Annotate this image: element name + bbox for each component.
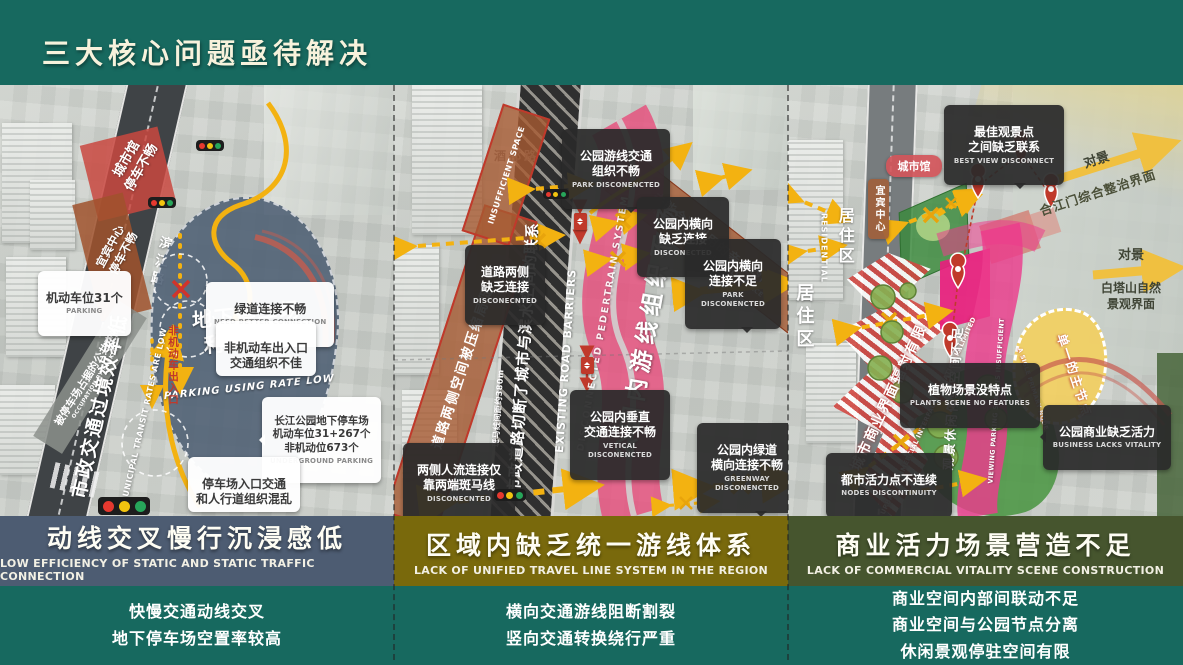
callout-en: DISCONECNTED: [473, 297, 537, 306]
parking-entrance-text: 停车场入口交通 和人行道组织混乱: [196, 477, 292, 507]
callout-en: VETICAL DISCONENCTED: [578, 442, 662, 460]
callout-zh: 植物场景没特点: [928, 383, 1012, 397]
view2-target: 白塔山自然 景观界面: [1083, 281, 1179, 312]
callout-zh: 都市活力点不连续: [841, 473, 937, 487]
greenway-link-callout: 公园内绿道 横向连接不畅 GREENWAY DISCONENCTED: [697, 423, 788, 513]
traffic-light-icon: [196, 140, 224, 151]
callout-en: BUSINESS LACKS VITALITY: [1051, 441, 1163, 450]
issue-bar-subtitle: LOW EFFICIENCY OF STATIC AND STATIC TRAF…: [0, 557, 394, 583]
issue-bar-title: 动线交叉慢行沉浸感低: [47, 519, 347, 555]
panel-commercial-map: 城市商业界面辐射有限 URBAN COMMERCIAL INTERFACE RA…: [788, 85, 1183, 516]
issue-bars: 动线交叉慢行沉浸感低 LOW EFFICIENCY OF STATIC AND …: [0, 516, 1183, 586]
lateral-weak-callout: 公园内横向 连接不足 PARK DISCONENCTED: [685, 239, 781, 329]
callout-zh: 两侧人流连接仅 靠两端斑马线: [417, 463, 501, 493]
parking-count-en: PARKING: [46, 307, 123, 316]
residential-label-2: 居住区: [792, 283, 815, 352]
nonmotor-entrance-vertical-label: 非机动车出入口: [166, 325, 181, 406]
view2-label: 对景: [1118, 248, 1144, 265]
elevator-icon: [574, 213, 587, 230]
nonmotor-entrance-text: 非机动车出入口 交通组织不佳: [224, 341, 308, 371]
issue-bar-subtitle: LACK OF UNIFIED TRAVEL LINE SYSTEM IN TH…: [414, 564, 768, 577]
issue-bar-commercial: 商业活力场景营造不足 LACK OF COMMERCIAL VITALITY S…: [788, 516, 1183, 586]
callout-zh: 公园游线交通 组织不畅: [580, 149, 652, 179]
issue-bar-traffic: 动线交叉慢行沉浸感低 LOW EFFICIENCY OF STATIC AND …: [0, 516, 394, 586]
vertical-link-callout: 公园内垂直 交通连接不畅 VETICAL DISCONENCTED: [570, 390, 670, 480]
business-callout: 公园商业缺乏活力 BUSINESS LACKS VITALITY: [1043, 405, 1171, 470]
callout-zh: 公园商业缺乏活力: [1059, 425, 1155, 439]
callout-en: GREENWAY DISCONENCTED: [705, 475, 788, 493]
callout-en: DISCONECNTED: [411, 495, 507, 504]
summary-travel-line: 横向交通游线阻断割裂 竖向交通转换绕行严重: [394, 586, 788, 665]
dashed-link-arrow: [792, 197, 840, 217]
elevator-icon: [581, 357, 594, 374]
panel-travel-line-map: 酒都路 道路两侧空间被压缩局促 INSUFFICIENT SPACE 未能合理利…: [394, 85, 788, 516]
issue-bar-title: 商业活力场景营造不足: [835, 526, 1135, 562]
summary-commercial: 商业空间内部间联动不足 商业空间与公园节点分离 休闲景观停驻空间有限: [788, 586, 1183, 665]
header: 三大核心问题亟待解决: [0, 0, 1183, 85]
summary-traffic: 快慢交通动线交叉 地下停车场空置率较高: [0, 586, 394, 665]
traffic-light-icon: [148, 197, 176, 208]
nonmotor-entrance-callout: 非机动车出入口 交通组织不佳: [216, 321, 316, 376]
roadside-callout: 道路两侧 缺乏连接 DISCONECNTED: [465, 245, 545, 325]
issue-bar-subtitle: LACK OF COMMERCIAL VITALITY SCENE CONSTR…: [807, 564, 1164, 577]
view-arrow: [1093, 269, 1164, 275]
callout-zh: 最佳观景点 之间缺乏联系: [968, 125, 1040, 155]
nodes-callout: 都市活力点不连续 NODES DISCONTINUITY: [826, 453, 952, 516]
callout-en: PARK DISCONENCTED: [570, 181, 662, 190]
cityhall-tag: 城市馆: [886, 155, 942, 177]
panel-traffic-map: 城市馆 停车不畅 宜宾中心 停车不畅 被停车场占据的公共空间 OCCUPATIO…: [0, 85, 394, 516]
traffic-light-icon: [98, 497, 150, 515]
callout-zh: 公园内绿道 横向连接不畅: [711, 443, 783, 473]
best-view-callout: 最佳观景点 之间缺乏联系 BEST VIEW DISCONNECT: [944, 105, 1064, 185]
callout-zh: 公园内横向 连接不足: [703, 259, 763, 289]
callout-zh: 道路两侧 缺乏连接: [481, 265, 529, 295]
panel-divider: [787, 85, 789, 660]
issue-bar-travel-line: 区域内缺乏统一游线体系 LACK OF UNIFIED TRAVEL LINE …: [394, 516, 788, 586]
plants-callout: 植物场景没特点 PLANTS SCENE NO FEATURES: [900, 363, 1040, 428]
callout-en: BEST VIEW DISCONNECT: [952, 157, 1056, 166]
callout-en: PARK DISCONENCTED: [693, 291, 773, 309]
issue-bar-title: 区域内缺乏统一游线体系: [426, 526, 756, 562]
callout-en: PLANTS SCENE NO FEATURES: [908, 399, 1032, 408]
double-arrow: [712, 173, 739, 180]
viewing-ribbon-top: [940, 232, 1040, 245]
crosswalk-only-callout: 两侧人流连接仅 靠两端斑马线 DISCONECNTED: [403, 443, 515, 516]
parking-count-callout: 机动车位31个 PARKING: [38, 271, 131, 336]
slide: 三大核心问题亟待解决 城市馆 停车不畅 宜宾中心 停车不畅 被停车场占据的公共空…: [0, 0, 1183, 665]
traffic-light-icon: [494, 489, 526, 501]
traffic-light-icon: [543, 189, 569, 199]
residential-label: 居住区: [834, 207, 855, 267]
panel-divider: [393, 85, 395, 660]
map-row: 城市馆 停车不畅 宜宾中心 停车不畅 被停车场占据的公共空间 OCCUPATIO…: [0, 85, 1183, 516]
callout-en: NODES DISCONTINUITY: [834, 489, 944, 498]
greenway-zh: 绿道连接不畅: [234, 302, 306, 316]
callout-zh: 公园内垂直 交通连接不畅: [584, 410, 656, 440]
page-title: 三大核心问题亟待解决: [42, 32, 372, 72]
residential-label-en: RESIDENTIAL: [818, 213, 828, 283]
underground-parking-zh: 长江公园地下停车场 机动车位31+267个 非机动位673个: [273, 415, 371, 454]
summary-row: 快慢交通动线交叉 地下停车场空置率较高 横向交通游线阻断割裂 竖向交通转换绕行严…: [0, 586, 1183, 665]
yibin-center-tag: 宜宾中心: [868, 179, 889, 239]
parking-count-zh: 机动车位31个: [46, 291, 123, 305]
parking-entrance-callout: 停车场入口交通 和人行道组织混乱: [188, 457, 300, 512]
